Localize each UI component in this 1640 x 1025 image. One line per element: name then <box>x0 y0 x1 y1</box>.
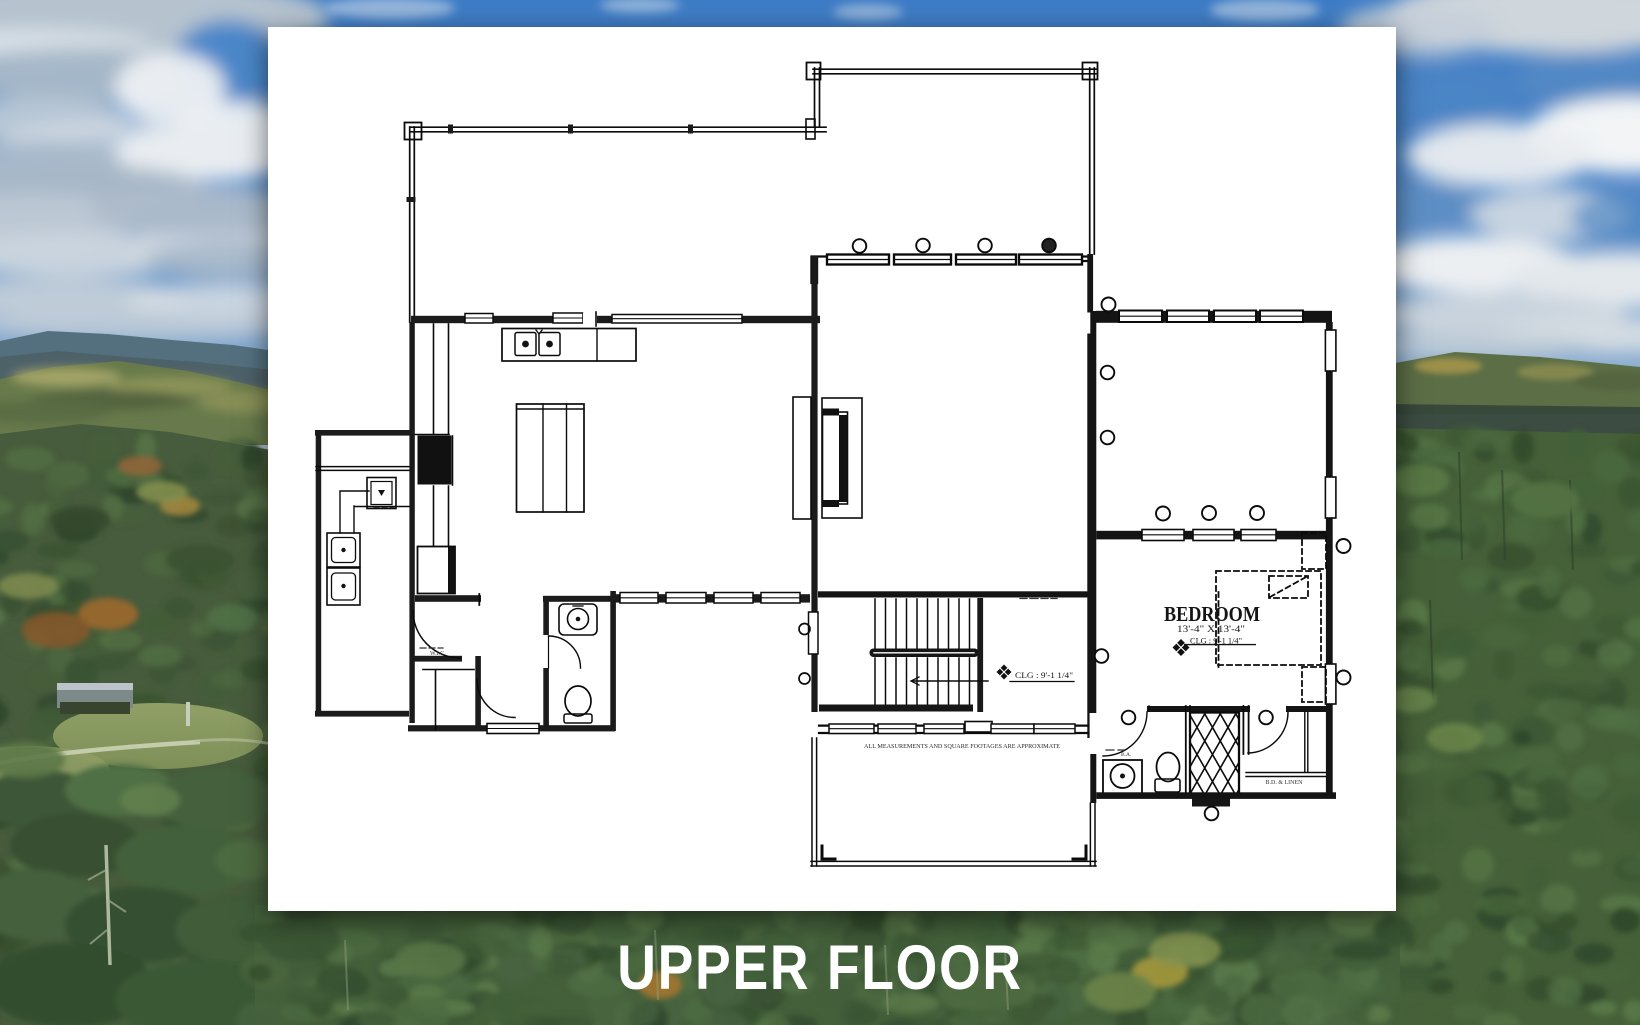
svg-text:B.A.: B.A. <box>1121 752 1132 758</box>
svg-text:13'-4" X 13'-4": 13'-4" X 13'-4" <box>1177 624 1245 634</box>
svg-text:W.I.C.: W.I.C. <box>430 651 446 657</box>
svg-text:CLG : 9'-1 1/4": CLG : 9'-1 1/4" <box>1015 670 1073 680</box>
svg-text:B.D. & LINEN: B.D. & LINEN <box>1266 780 1304 786</box>
svg-text:ALL MEASUREMENTS AND SQUARE FO: ALL MEASUREMENTS AND SQUARE FOOTAGES ARE… <box>864 743 1060 750</box>
svg-text:BEDROOM: BEDROOM <box>1164 602 1260 626</box>
